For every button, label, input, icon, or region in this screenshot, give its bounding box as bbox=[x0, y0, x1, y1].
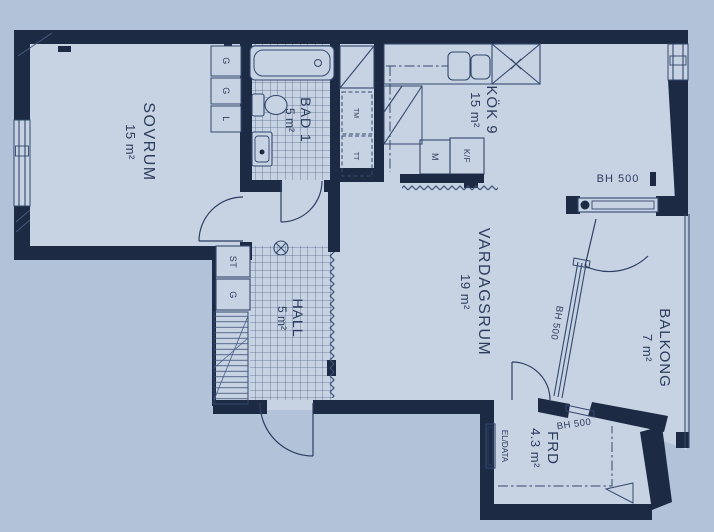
window-hinge-dot bbox=[581, 201, 590, 210]
sovrum-label: SOVRUM bbox=[140, 102, 157, 181]
wall-bad-bottom-left bbox=[252, 180, 282, 192]
hall-floor-zigzag bbox=[329, 252, 336, 398]
wall-left-upper bbox=[14, 30, 30, 122]
hall-area: 5 m² bbox=[275, 306, 289, 330]
east-window bbox=[668, 44, 688, 80]
wall-niche-right bbox=[374, 44, 384, 182]
balkong-top-window bbox=[578, 198, 658, 212]
fridge-freezer-label: K/F bbox=[462, 149, 471, 163]
kitchen-floor-zigzag bbox=[402, 185, 498, 193]
floor-plan-drawing: SOVRUM 15 m² BAD 1 5 m² KÖK 9 15 m² VARD… bbox=[0, 0, 714, 532]
railing-end-post bbox=[676, 432, 689, 448]
balkong-label: BALKONG bbox=[656, 308, 673, 388]
bad-area: 5 m² bbox=[283, 108, 297, 132]
dryer-label: TT bbox=[352, 152, 359, 161]
wardrobe-1-label: G bbox=[221, 57, 231, 65]
wall-balkong-corner bbox=[656, 196, 678, 216]
bad-label: BAD 1 bbox=[298, 97, 314, 142]
wall-hall-bottom-right bbox=[313, 400, 333, 414]
sovrum-window bbox=[14, 120, 30, 206]
hall-wardrobe-label: G bbox=[228, 291, 238, 299]
el-data-label: EL/DATA bbox=[500, 430, 509, 463]
kok-area: 15 m² bbox=[468, 92, 483, 128]
sink bbox=[252, 132, 272, 166]
wall-lobby-vardagsrum bbox=[328, 182, 340, 252]
cleaning-closet-label: ST bbox=[228, 256, 238, 269]
frd-area: 4.3 m² bbox=[528, 428, 543, 468]
vent-mark-balkong-top bbox=[650, 172, 656, 186]
vent-mark-sovrum bbox=[58, 46, 71, 52]
kitchen-counter-edge bbox=[400, 174, 484, 183]
bh500-top-label: BH 500 bbox=[597, 173, 640, 185]
frd-label: FRD bbox=[544, 431, 561, 465]
vardagsrum-area: 19 m² bbox=[458, 274, 473, 310]
vardagsrum-label: VARDAGSRUM bbox=[475, 228, 492, 357]
balkong-area: 7 m² bbox=[640, 334, 655, 362]
bathtub bbox=[250, 46, 334, 80]
wall-frd-bottom bbox=[480, 504, 652, 520]
toilet bbox=[252, 94, 287, 116]
floor-plan-page: SOVRUM 15 m² BAD 1 5 m² KÖK 9 15 m² VARD… bbox=[0, 0, 714, 532]
wall-frd-left bbox=[480, 400, 494, 518]
wall-sovrum-bottom bbox=[14, 246, 216, 260]
kok-label: KÖK 9 bbox=[483, 85, 501, 134]
micro-cabinet-label: M bbox=[430, 153, 440, 161]
linen-closet-label: L bbox=[221, 116, 231, 122]
wall-vardagsrum-bottom bbox=[332, 400, 480, 414]
sovrum-area: 15 m² bbox=[123, 124, 138, 160]
wall-niche-bottom bbox=[330, 168, 384, 182]
wall-top bbox=[14, 30, 688, 44]
washing-machine-label: TM bbox=[352, 108, 359, 118]
hatch-strip bbox=[214, 312, 248, 404]
wardrobe-2-label: G bbox=[221, 87, 231, 95]
hall-label: HALL bbox=[290, 298, 306, 337]
